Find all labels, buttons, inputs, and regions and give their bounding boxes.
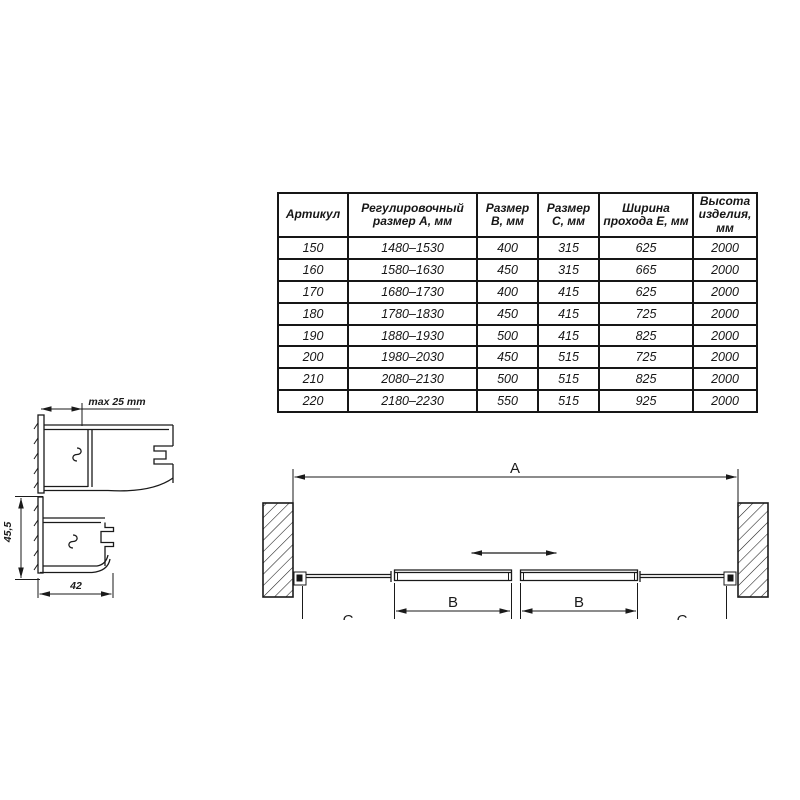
door-plan-view: A bbox=[250, 440, 800, 620]
table-cell: 415 bbox=[538, 325, 599, 347]
table-cell: 725 bbox=[599, 346, 693, 368]
table-cell: 1980–2030 bbox=[348, 346, 477, 368]
table-cell: 925 bbox=[599, 390, 693, 412]
table-cell: 1780–1830 bbox=[348, 303, 477, 325]
table-row: 1801780–18304504157252000 bbox=[278, 303, 757, 325]
table-cell: 825 bbox=[599, 368, 693, 390]
fixed-panel-right bbox=[640, 571, 724, 582]
wall-section-right bbox=[738, 503, 768, 597]
wall-profile-detail-top: max 25 mm bbox=[20, 390, 190, 500]
column-header: Высота изделия, мм bbox=[693, 193, 757, 237]
table-cell: 450 bbox=[477, 303, 538, 325]
table-row: 1901880–19305004158252000 bbox=[278, 325, 757, 347]
table-cell: 2180–2230 bbox=[348, 390, 477, 412]
dimension-c-label-left: C bbox=[343, 612, 354, 620]
table-cell: 725 bbox=[599, 303, 693, 325]
table-cell: 515 bbox=[538, 346, 599, 368]
table-cell: 220 bbox=[278, 390, 348, 412]
table-cell: 200 bbox=[278, 346, 348, 368]
table-cell: 2080–2130 bbox=[348, 368, 477, 390]
dimension-b-label-right: B bbox=[574, 594, 584, 611]
table-cell: 2000 bbox=[693, 259, 757, 281]
table-cell: 315 bbox=[538, 237, 599, 259]
wall-profile-left bbox=[294, 572, 306, 585]
table-cell: 180 bbox=[278, 303, 348, 325]
table-cell: 2000 bbox=[693, 281, 757, 303]
table-cell: 450 bbox=[477, 346, 538, 368]
profile-outline-bottom bbox=[34, 497, 114, 573]
table-cell: 400 bbox=[477, 237, 538, 259]
adjustment-arrowhead bbox=[72, 406, 83, 411]
column-header: Размер С, мм bbox=[538, 193, 599, 237]
table-cell: 2000 bbox=[693, 346, 757, 368]
column-header: Артикул bbox=[278, 193, 348, 237]
table-cell: 315 bbox=[538, 259, 599, 281]
table-cell: 190 bbox=[278, 325, 348, 347]
table-cell: 2000 bbox=[693, 325, 757, 347]
table-cell: 500 bbox=[477, 325, 538, 347]
table-cell: 625 bbox=[599, 237, 693, 259]
table-cell: 1680–1730 bbox=[348, 281, 477, 303]
table-cell: 2000 bbox=[693, 303, 757, 325]
table-cell: 150 bbox=[278, 237, 348, 259]
wall-profile-detail-bottom: 45,5 42 bbox=[0, 485, 200, 605]
profile-depth-label: 45,5 bbox=[2, 522, 14, 544]
wall-profile-right bbox=[724, 572, 736, 585]
size-table: Артикул Регулировочный размер А, мм Разм… bbox=[277, 192, 758, 413]
dimension-a-label: A bbox=[510, 460, 520, 477]
profile-outline-top bbox=[34, 415, 173, 493]
table-cell: 825 bbox=[599, 325, 693, 347]
dimension-c-label-right: C bbox=[677, 612, 688, 620]
sliding-panel-right bbox=[520, 570, 638, 582]
table-cell: 500 bbox=[477, 368, 538, 390]
sliding-panel-left bbox=[394, 570, 512, 582]
table-cell: 415 bbox=[538, 303, 599, 325]
table-header-row: Артикул Регулировочный размер А, мм Разм… bbox=[278, 193, 757, 237]
dimension-b-label-left: B bbox=[448, 594, 458, 611]
table-cell: 170 bbox=[278, 281, 348, 303]
table-cell: 1480–1530 bbox=[348, 237, 477, 259]
max-adjustment-label: max 25 mm bbox=[88, 396, 145, 408]
fixed-panel-left bbox=[306, 571, 391, 582]
drawing-sheet: Артикул Регулировочный размер А, мм Разм… bbox=[0, 0, 800, 800]
table-cell: 160 bbox=[278, 259, 348, 281]
table-row: 1601580–16304503156652000 bbox=[278, 259, 757, 281]
table-cell: 210 bbox=[278, 368, 348, 390]
table-cell: 515 bbox=[538, 368, 599, 390]
table-cell: 515 bbox=[538, 390, 599, 412]
wall-section-left bbox=[263, 503, 293, 597]
table-cell: 400 bbox=[477, 281, 538, 303]
profile-width-label: 42 bbox=[69, 580, 82, 592]
glass-clip-symbol bbox=[73, 448, 81, 461]
table-cell: 625 bbox=[599, 281, 693, 303]
table-cell: 665 bbox=[599, 259, 693, 281]
column-header: Ширина прохода Е, мм bbox=[599, 193, 693, 237]
table-row: 1701680–17304004156252000 bbox=[278, 281, 757, 303]
column-header: Регулировочный размер А, мм bbox=[348, 193, 477, 237]
table-cell: 550 bbox=[477, 390, 538, 412]
glass-clip-symbol bbox=[69, 535, 77, 548]
table-cell: 2000 bbox=[693, 368, 757, 390]
table-row: 2102080–21305005158252000 bbox=[278, 368, 757, 390]
table-cell: 415 bbox=[538, 281, 599, 303]
table-row: 2001980–20304505157252000 bbox=[278, 346, 757, 368]
table-cell: 450 bbox=[477, 259, 538, 281]
table-cell: 1880–1930 bbox=[348, 325, 477, 347]
table-cell: 1580–1630 bbox=[348, 259, 477, 281]
table-row: 2202180–22305505159252000 bbox=[278, 390, 757, 412]
column-header: Размер В, мм bbox=[477, 193, 538, 237]
table-row: 1501480–15304003156252000 bbox=[278, 237, 757, 259]
table-cell: 2000 bbox=[693, 390, 757, 412]
table-cell: 2000 bbox=[693, 237, 757, 259]
